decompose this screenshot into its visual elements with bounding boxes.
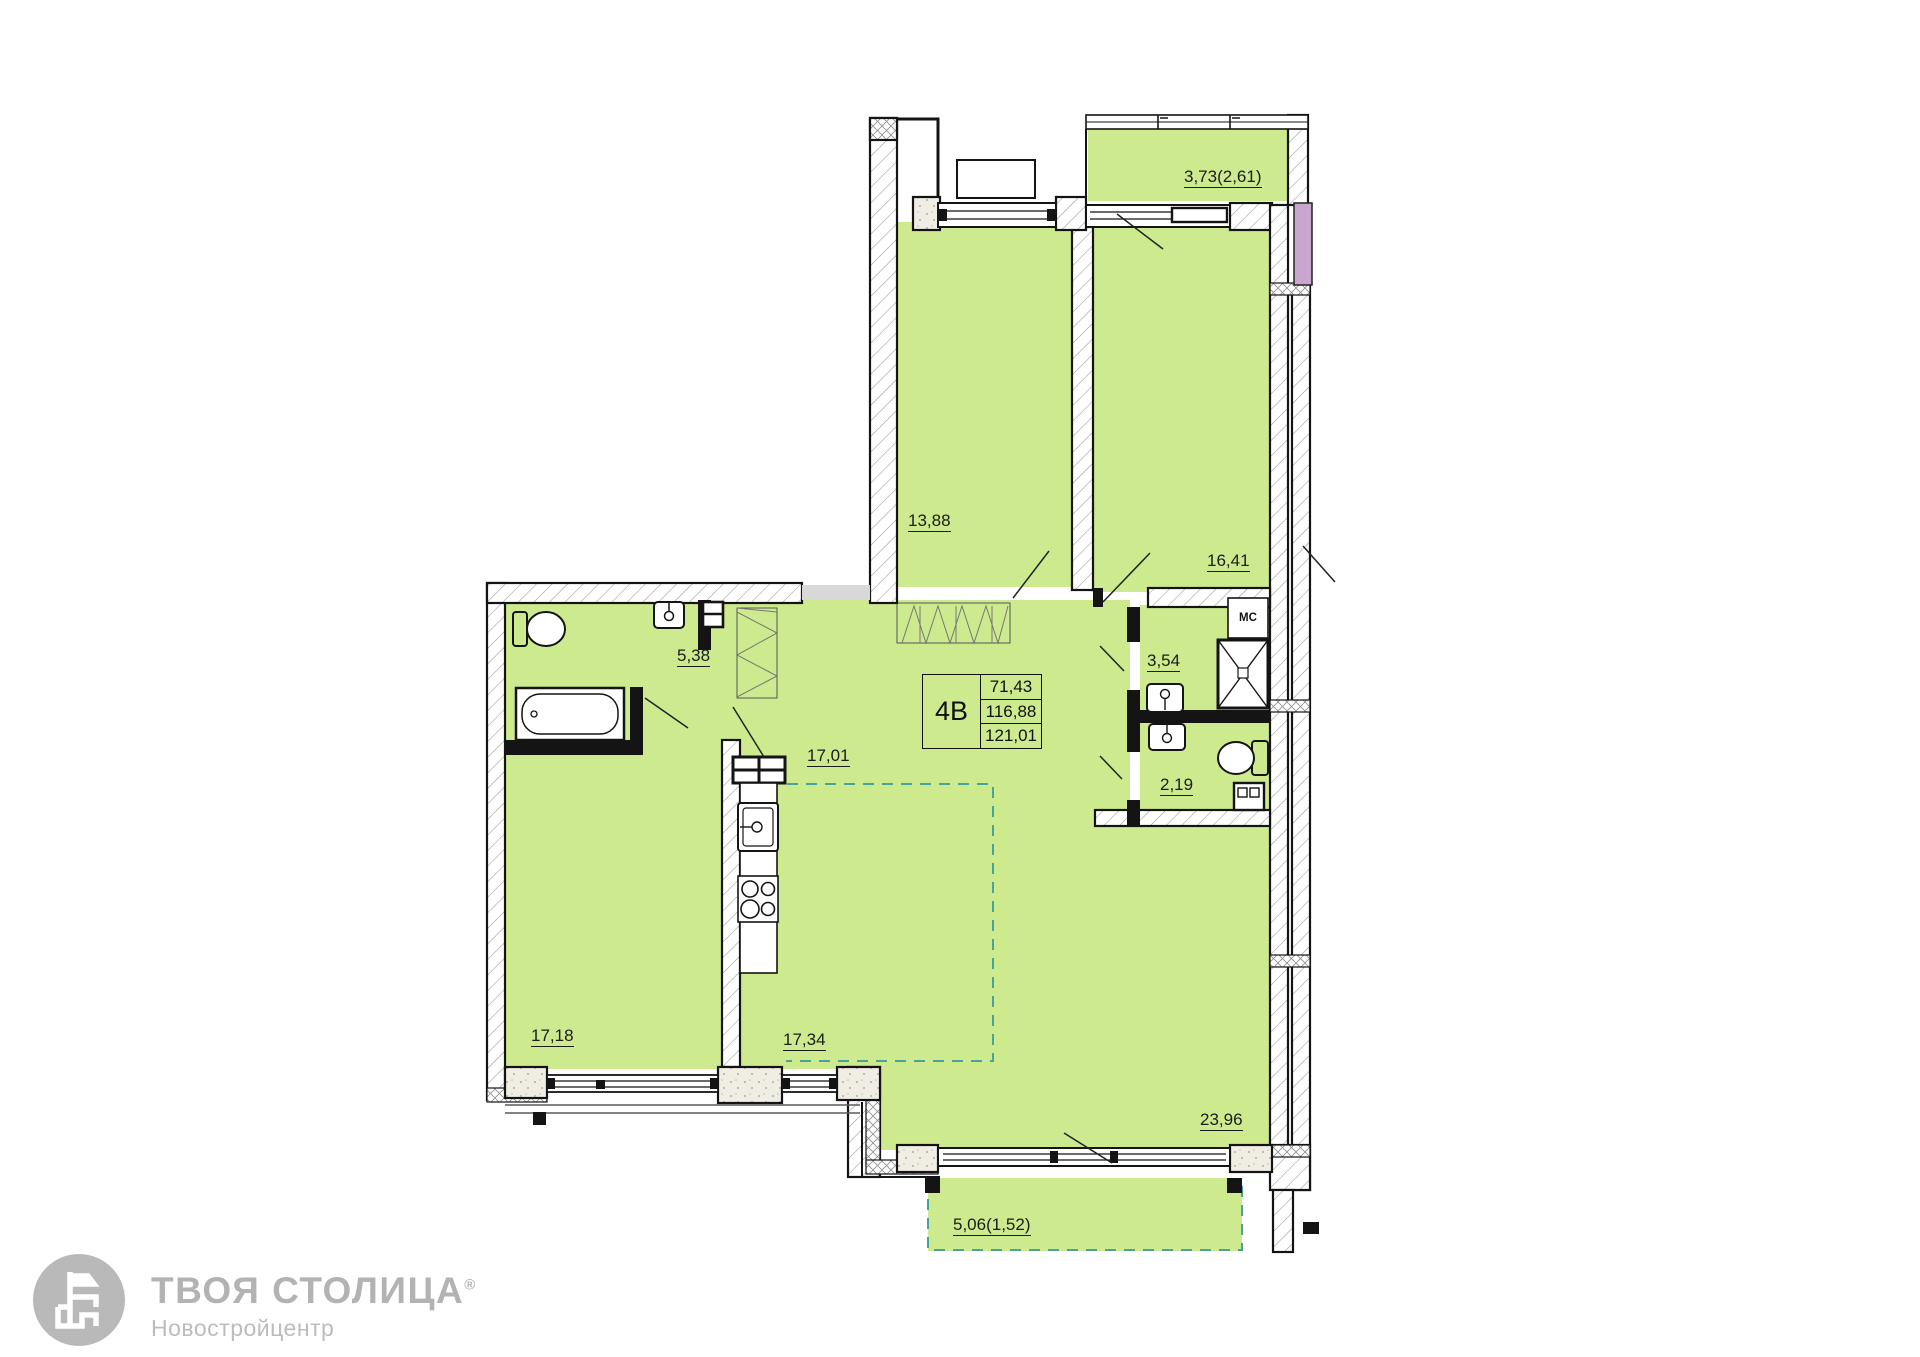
toilet-wc-icon <box>1218 741 1268 775</box>
company-subtitle: Новостройцентр <box>151 1315 477 1342</box>
vent-shaft-icon <box>1218 640 1268 708</box>
kitchen-counter <box>738 783 778 973</box>
room-area-living-room: 23,96 <box>1200 1111 1243 1131</box>
unit-type-label: 4В <box>923 675 981 748</box>
registered-mark: ® <box>464 1277 477 1294</box>
company-name: ТВОЯ СТОЛИЦА® <box>151 1272 477 1309</box>
window-bedroom-bottom <box>547 1075 718 1092</box>
room-area-loggia-top: 3,73(2,61) <box>1184 168 1262 188</box>
company-name-text: ТВОЯ СТОЛИЦА <box>151 1270 464 1311</box>
room-area-shower-room: 3,54 <box>1147 652 1180 672</box>
kitchen-cabinet-icon <box>733 757 785 783</box>
unit-area-total: 116,88 <box>981 700 1041 725</box>
washing-machine-icon <box>1234 783 1264 810</box>
stove-icon <box>738 876 778 922</box>
shaft-label-mc: МС <box>1232 612 1264 624</box>
unit-area-with-balcony: 121,01 <box>981 724 1041 748</box>
room-area-loggia-bottom: 5,06(1,52) <box>953 1216 1031 1236</box>
window-kitchen <box>782 1075 837 1092</box>
room-area-bedroom-top: 13,88 <box>908 512 951 532</box>
bathtub-icon <box>516 688 624 740</box>
floor-plan-page: 13,88 16,41 3,73(2,61) 5,38 17,01 3,54 2… <box>0 0 1920 1357</box>
sink-shower-room-icon <box>1147 684 1183 712</box>
company-logo-icon <box>33 1254 125 1346</box>
room-area-wc: 2,19 <box>1160 776 1193 796</box>
toilet-bathroom-icon <box>513 612 565 646</box>
duct-symbol-hall <box>703 602 723 627</box>
window-sill-lines <box>505 1105 860 1125</box>
sink-wc-icon <box>1149 724 1185 750</box>
room-area-kitchen: 17,34 <box>783 1031 826 1051</box>
company-logo: ТВОЯ СТОЛИЦА® Новостройцентр <box>33 1254 477 1346</box>
window-bedroom-top <box>938 203 1056 227</box>
room-area-bathroom: 5,38 <box>677 647 710 667</box>
neighbor-apartment-strip <box>1294 203 1312 285</box>
entrance-doorway <box>802 585 870 600</box>
unit-area-living: 71,43 <box>981 675 1041 700</box>
kitchen-sink-icon <box>738 803 778 851</box>
room-area-bedroom-bottom: 17,18 <box>531 1027 574 1047</box>
unit-info-table: 4В 71,43 116,88 121,01 <box>922 674 1042 749</box>
room-area-bedroom-right: 16,41 <box>1207 552 1250 572</box>
facade-recess <box>897 119 1035 200</box>
sink-bathroom-icon <box>654 602 684 628</box>
room-area-hall: 17,01 <box>807 747 850 767</box>
